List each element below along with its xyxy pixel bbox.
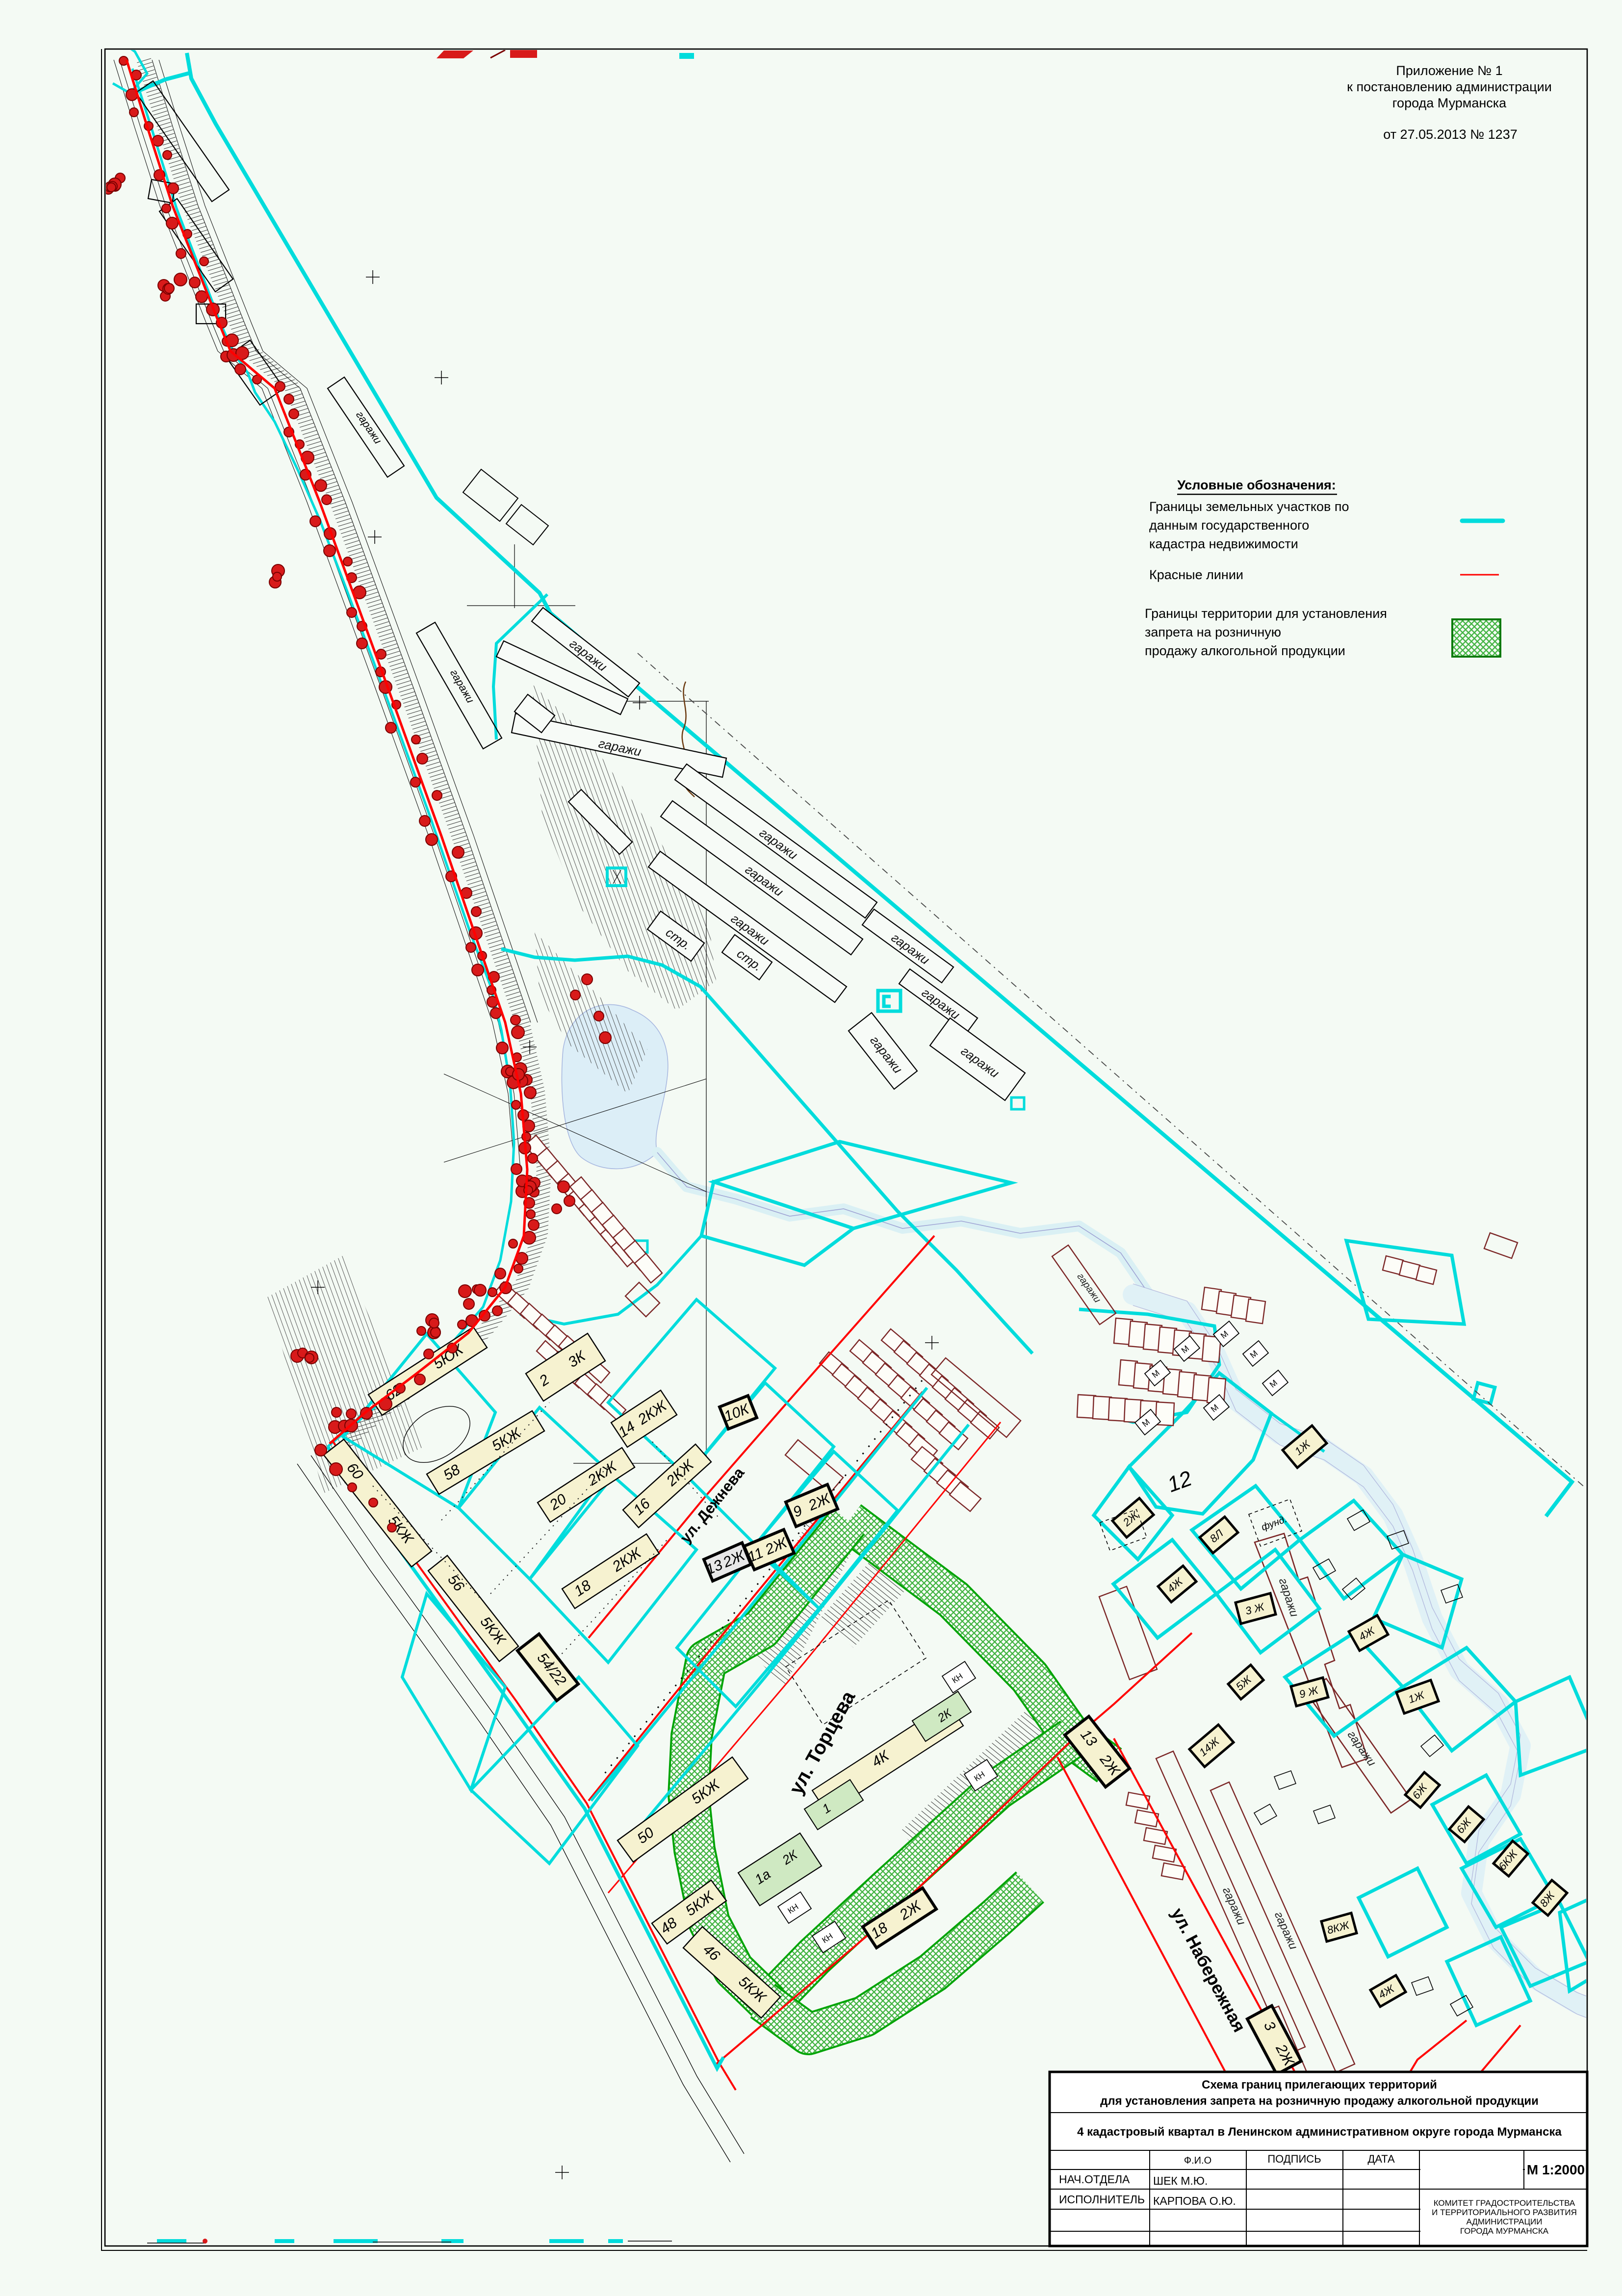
svg-text:4 кадастровый квартал в Ленинс: 4 кадастровый квартал в Ленинском админи… <box>1077 2125 1562 2139</box>
svg-text:от 27.05.2013 № 1237: от 27.05.2013 № 1237 <box>1383 127 1517 142</box>
svg-text:Приложение № 1: Приложение № 1 <box>1396 63 1502 78</box>
svg-text:КАРПОВА О.Ю.: КАРПОВА О.Ю. <box>1153 2194 1236 2207</box>
svg-text:М 1:2000: М 1:2000 <box>1527 2162 1585 2177</box>
svg-text:к постановлению администрации: к постановлению администрации <box>1347 79 1552 94</box>
svg-text:Ф.И.О: Ф.И.О <box>1184 2155 1211 2166</box>
svg-text:кадастра недвижимости: кадастра недвижимости <box>1149 536 1298 551</box>
svg-text:Схема границ прилегающих терри: Схема границ прилегающих территорий <box>1202 2078 1437 2092</box>
svg-text:ШЕК М.Ю.: ШЕК М.Ю. <box>1153 2174 1208 2187</box>
svg-text:Условные обозначения:: Условные обозначения: <box>1177 478 1336 492</box>
svg-text:Границы территории для установ: Границы территории для установления <box>1145 606 1387 621</box>
svg-text:продажу алкогольной продукции: продажу алкогольной продукции <box>1145 643 1345 658</box>
svg-text:И ТЕРРИТОРИАЛЬНОГО РАЗВИТИЯ: И ТЕРРИТОРИАЛЬНОГО РАЗВИТИЯ <box>1432 2208 1577 2217</box>
svg-text:НАЧ.ОТДЕЛА: НАЧ.ОТДЕЛА <box>1059 2173 1130 2186</box>
svg-text:Границы земельных участков по: Границы земельных участков по <box>1149 499 1349 514</box>
svg-text:ГОРОДА МУРМАНСКА: ГОРОДА МУРМАНСКА <box>1460 2226 1549 2236</box>
svg-text:АДМИНИСТРАЦИИ: АДМИНИСТРАЦИИ <box>1467 2217 1543 2226</box>
svg-text:города Мурманска: города Мурманска <box>1392 96 1507 110</box>
svg-text:ДАТА: ДАТА <box>1367 2153 1395 2165</box>
svg-text:запрета на розничную: запрета на розничную <box>1145 625 1281 639</box>
svg-text:КОМИТЕТ ГРАДОСТРОИТЕЛЬСТВА: КОМИТЕТ ГРАДОСТРОИТЕЛЬСТВА <box>1434 2198 1575 2208</box>
svg-text:ИСПОЛНИТЕЛЬ: ИСПОЛНИТЕЛЬ <box>1059 2193 1145 2206</box>
svg-text:для установления запрета на ро: для установления запрета на розничную пр… <box>1100 2094 1539 2108</box>
svg-text:Красные линии: Красные линии <box>1149 567 1243 582</box>
svg-text:данным государственного: данным государственного <box>1149 518 1309 533</box>
svg-text:ПОДПИСЬ: ПОДПИСЬ <box>1267 2153 1321 2165</box>
